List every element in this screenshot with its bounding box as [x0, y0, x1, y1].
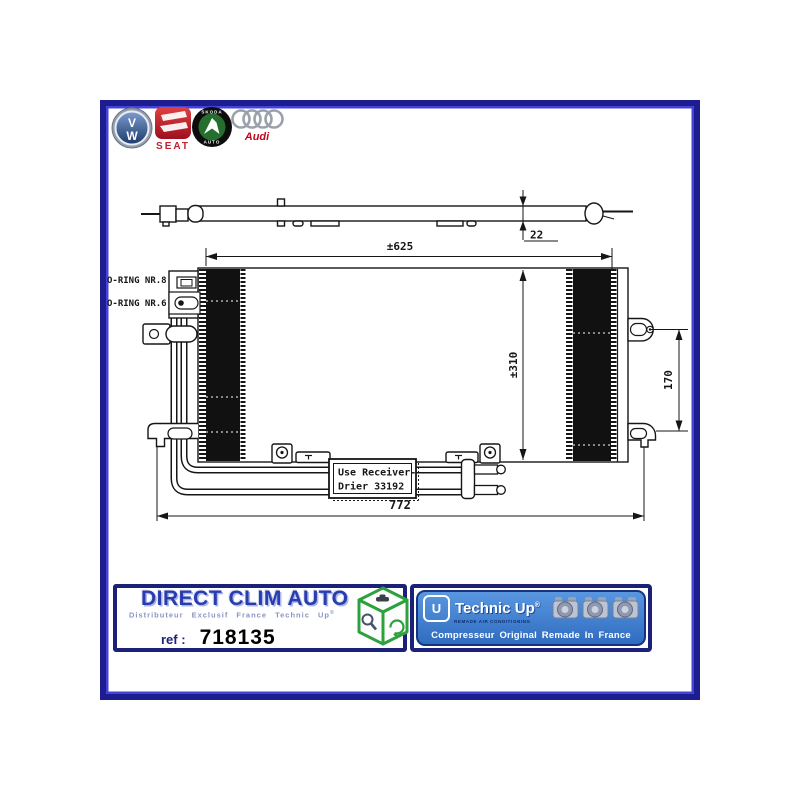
technicup-subtext: REMADE AIR CONDITIONING — [454, 619, 531, 624]
green-cube-logo — [355, 585, 411, 651]
vw-letter-w: W — [126, 129, 138, 143]
oring-labels: O-RING NR.8 O-RING NR.6 — [107, 276, 167, 309]
dim-bracket-label: 170 — [662, 370, 675, 390]
seat-logo: SEAT — [155, 107, 191, 152]
receiver-note-line2: Drier 33192 — [338, 481, 404, 493]
dimension-bracket-170: 170 — [651, 330, 688, 432]
audi-logo: Audi — [233, 111, 283, 144]
ref-number: 718135 — [200, 626, 276, 650]
audi-wordmark: Audi — [244, 131, 270, 143]
vw-letter-v: V — [128, 116, 136, 130]
receiver-drier-note: Use Receiver- Drier 33192 — [329, 459, 419, 501]
technicup-brand: Technic Up® — [455, 600, 540, 617]
technicup-u-icon: U — [423, 595, 450, 622]
technicup-logo-row: U Technic Up® — [418, 592, 644, 622]
left-upper-bracket — [143, 324, 197, 344]
dim-depth-label: 22 — [530, 229, 543, 242]
oring-nr6-label: O-RING NR.6 — [107, 299, 167, 309]
technicup-banner: U Technic Up® — [410, 584, 652, 652]
dimension-width-625: ±625 — [206, 240, 612, 271]
registered-mark: ® — [330, 610, 335, 616]
dim-height-label: ±310 — [507, 352, 520, 379]
ref-label: ref : — [161, 632, 186, 647]
skoda-auto-label: AUTO — [204, 140, 221, 145]
skoda-logo: SKODA AUTO — [192, 107, 232, 147]
brand-logos: V W SEAT SKODA AUTO Audi — [112, 107, 283, 152]
technicup-tagline: Compresseur Original Remade In France — [418, 630, 644, 641]
seat-wordmark: SEAT — [156, 141, 190, 152]
dim-overall-label: 772 — [389, 498, 411, 512]
skoda-wordmark: SKODA — [201, 110, 222, 115]
condenser-front-view: Use Receiver- Drier 33192 — [143, 268, 656, 501]
compressor-icon — [552, 595, 579, 622]
compressor-icon — [612, 595, 639, 622]
product-sheet: V W SEAT SKODA AUTO Audi — [0, 0, 800, 800]
technicup-brand-text: Technic Up — [455, 600, 535, 617]
technicup-registered-mark: ® — [535, 602, 540, 609]
inlet-fitting-block — [169, 271, 200, 318]
vw-logo: V W — [112, 108, 152, 148]
right-lower-bracket — [628, 424, 656, 448]
technical-drawing: V W SEAT SKODA AUTO Audi — [0, 0, 800, 800]
compressor-icon — [582, 595, 609, 622]
oring-nr8-label: O-RING NR.8 — [107, 276, 167, 286]
condenser-top-view — [141, 199, 633, 226]
compressor-photos — [552, 595, 639, 622]
right-upper-bracket — [628, 319, 653, 341]
dim-width-label: ±625 — [387, 240, 414, 253]
pipe-connector — [462, 460, 506, 499]
technicup-panel: U Technic Up® — [416, 590, 646, 646]
receiver-note-line1: Use Receiver- — [338, 467, 416, 479]
company-subtitle-text: Distributeur Exclusif France Technic Up — [129, 611, 330, 620]
